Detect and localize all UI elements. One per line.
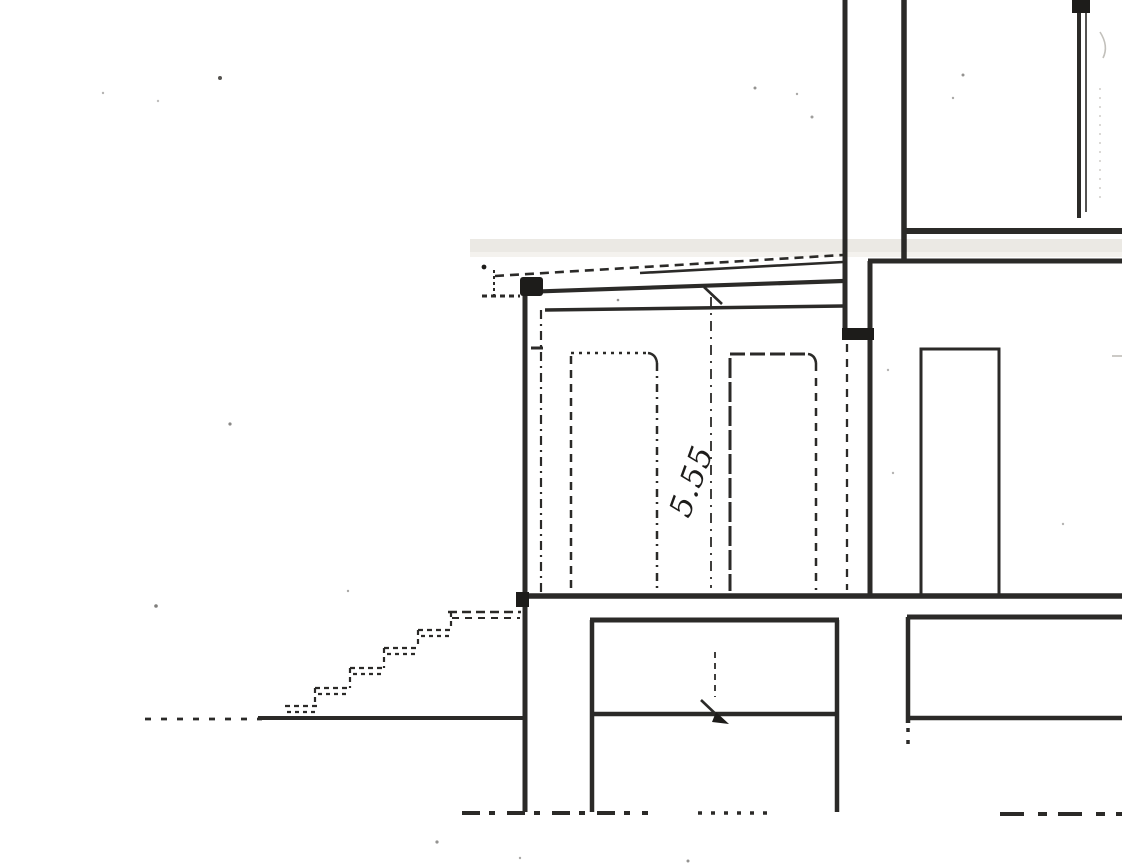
porch-opening-right bbox=[730, 354, 816, 591]
floor-and-foundation bbox=[448, 596, 1122, 814]
scan-band-light bbox=[470, 252, 1122, 257]
roof-upper-line bbox=[640, 262, 843, 273]
main-house-doorway bbox=[921, 349, 999, 594]
opening-right-corner bbox=[808, 354, 816, 363]
faint-marks bbox=[1100, 32, 1122, 356]
architectural-section-drawing: 5.55 bbox=[0, 0, 1122, 868]
dimension-label-group: 5.55 bbox=[663, 441, 722, 522]
window-jamb-top-blob bbox=[1072, 0, 1090, 13]
eave-dot bbox=[482, 265, 487, 270]
entry-stairs bbox=[285, 612, 453, 712]
porch-ceiling-line bbox=[545, 306, 843, 310]
opening-left-corner bbox=[648, 353, 657, 363]
porch-post-cap bbox=[520, 277, 543, 296]
ground-line bbox=[145, 718, 523, 719]
roof-beam-line bbox=[522, 281, 843, 292]
grade-dashed-line bbox=[462, 813, 1122, 814]
faint-curve-top-right bbox=[1100, 32, 1105, 58]
porch-opening-left bbox=[571, 353, 657, 594]
dimension-arrow-top bbox=[704, 287, 722, 304]
wall-step-bar bbox=[842, 328, 874, 340]
floor-corner-blob bbox=[516, 592, 529, 607]
ink-strokes bbox=[145, 0, 1122, 814]
dimension-5-55 bbox=[701, 287, 722, 720]
dimension-label-5-55: 5.55 bbox=[663, 441, 722, 522]
scan-band bbox=[470, 239, 1122, 252]
porch bbox=[525, 294, 999, 812]
upper-window bbox=[1079, 0, 1086, 218]
section-drawing-canvas: 5.55 bbox=[0, 0, 1122, 868]
